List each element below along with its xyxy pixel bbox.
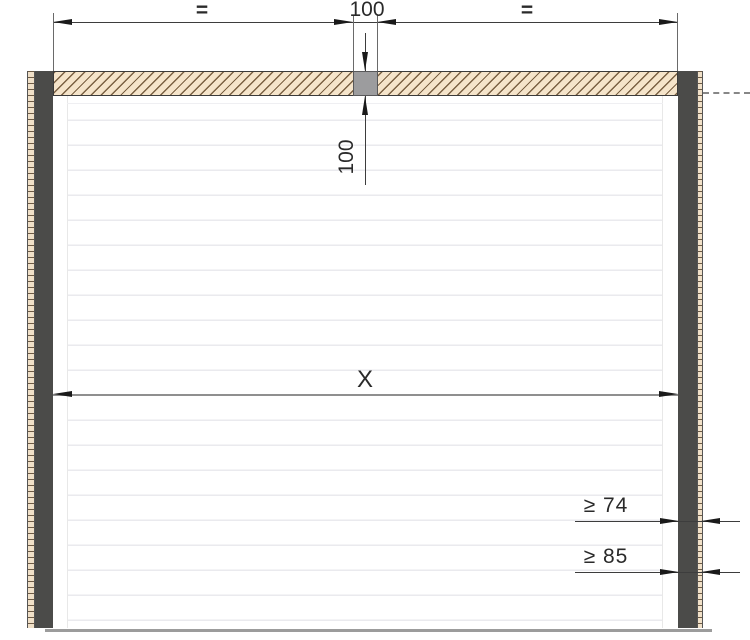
floor-line <box>45 629 712 632</box>
right-frame-post <box>678 71 697 628</box>
center-mounting-block <box>353 71 378 96</box>
dim-arrowhead <box>362 96 368 115</box>
installation-drawing: = 100 = 100 X ≥ 74 ≥ 85 <box>0 0 750 640</box>
dim-arrowhead <box>659 19 678 25</box>
opening-width-label: X <box>345 368 385 392</box>
block-width-label: 100 <box>337 0 397 20</box>
opening-width-dim-line <box>53 394 678 396</box>
lintel-height-label: 100 <box>326 137 366 177</box>
dim-arrowhead <box>362 52 368 71</box>
top-dimension-line <box>53 22 678 23</box>
dim-arrowhead <box>53 391 72 397</box>
left-wall-hatch <box>27 71 35 628</box>
left-frame-post <box>35 71 53 628</box>
min-side-room-85-label: ≥ 85 <box>574 546 638 567</box>
dim-arrowhead <box>701 569 720 575</box>
equal-spacing-right-label: = <box>507 0 547 21</box>
right-wall-hatch <box>697 71 703 628</box>
equal-spacing-left-label: = <box>182 0 222 21</box>
min-side-room-74-label: ≥ 74 <box>574 495 638 516</box>
dim-arrowhead <box>701 518 720 524</box>
dim-arrowhead <box>660 518 679 524</box>
extension-line-block-left <box>353 15 354 71</box>
dim-arrowhead <box>660 569 679 575</box>
dim-arrowhead <box>659 391 678 397</box>
dim-arrowhead <box>53 19 72 25</box>
lintel-extension-dashed-line <box>703 92 750 94</box>
